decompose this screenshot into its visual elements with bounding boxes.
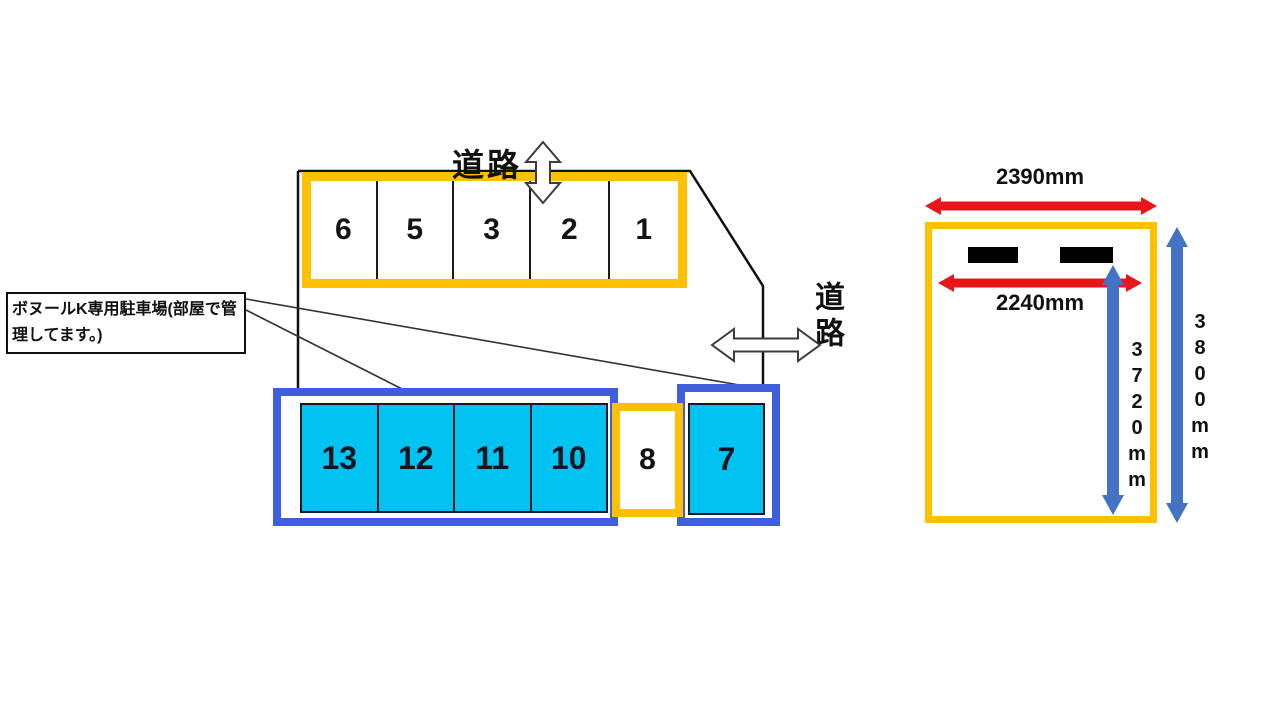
wheel-stop-left — [968, 247, 1018, 263]
road-label-right: 道路 — [804, 281, 848, 353]
wheel-stop-right — [1060, 247, 1113, 263]
road-label-top: 道路 — [452, 140, 522, 186]
dimension-inner-width: 2240mm — [965, 290, 1115, 316]
note-box: ボヌールK専用駐車場(部屋で管理してます。) — [6, 292, 246, 354]
space-8: 8 — [612, 403, 683, 517]
space-7: 7 — [688, 403, 765, 515]
space-5: 5 — [376, 181, 452, 279]
space-12: 12 — [379, 405, 454, 511]
space-13: 13 — [302, 405, 377, 511]
space-2: 2 — [529, 181, 607, 279]
bottom-parking-row: 13 12 11 10 — [300, 403, 608, 513]
space-detail-rect — [925, 222, 1157, 523]
space-10: 10 — [532, 405, 607, 511]
note-pointer-lines — [246, 299, 745, 393]
parking-diagram: ボヌールK専用駐車場(部屋で管理してます。) 道路 道路 6 5 3 2 1 1… — [0, 0, 1280, 720]
dimension-outer-height: 3800mm — [1188, 311, 1211, 467]
dimension-inner-height: 3720mm — [1125, 339, 1148, 495]
dimension-outer-width: 2390mm — [965, 164, 1115, 190]
space-3: 3 — [452, 181, 529, 279]
top-parking-strip: 6 5 3 2 1 — [302, 172, 687, 288]
space-1: 1 — [608, 181, 678, 279]
space-6: 6 — [311, 181, 376, 279]
space-11: 11 — [455, 405, 530, 511]
note-text: ボヌールK専用駐車場(部屋で管理してます。) — [12, 301, 237, 344]
